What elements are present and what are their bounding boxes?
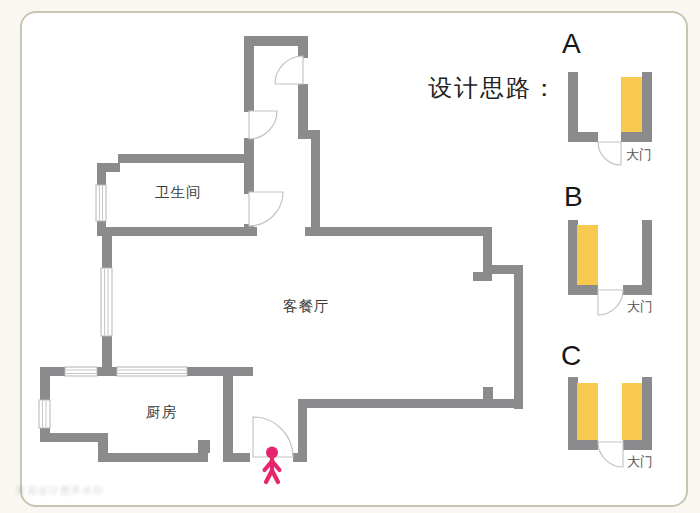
window-symbol [65,367,97,376]
room-label-bathroom: 卫生间 [155,183,202,202]
door-arc-icon [598,142,621,165]
design-heading: 设计思路： [428,72,558,104]
option-c-letter: C [561,340,581,372]
window-symbols [39,185,187,428]
shoe-cabinet-block [621,77,642,132]
option-b-letter: B [564,181,583,213]
door-arc-icons [249,56,303,457]
door-arc-icon [249,192,283,226]
door-arc-icon [598,442,623,467]
person-icon [265,447,280,483]
page: 设计思路： 卫生间 客餐厅 厨房 A 大门 B 大门 C 大门 家居设计图库水印 [0,0,700,513]
window-symbol [96,185,106,221]
door-arc-icon [249,111,277,139]
shoe-cabinet-block [577,225,598,285]
window-symbol [117,367,187,376]
option-b-door-label: 大门 [627,298,653,316]
window-symbol [39,400,50,428]
door-arc-icon [275,56,303,84]
shoe-cabinet-block [577,383,598,440]
room-label-kitchen: 厨房 [146,403,177,422]
shoe-cabinet-block [622,383,642,440]
room-label-living-dining: 客餐厅 [283,297,330,316]
option-c-door-label: 大门 [627,453,653,471]
option-a-letter: A [562,28,581,60]
watermark: 家居设计图库水印 [16,484,104,498]
floorplan-graphic [0,0,700,513]
door-arc-icon [598,290,623,315]
window-symbol [101,268,112,336]
option-a-door-label: 大门 [626,146,652,164]
